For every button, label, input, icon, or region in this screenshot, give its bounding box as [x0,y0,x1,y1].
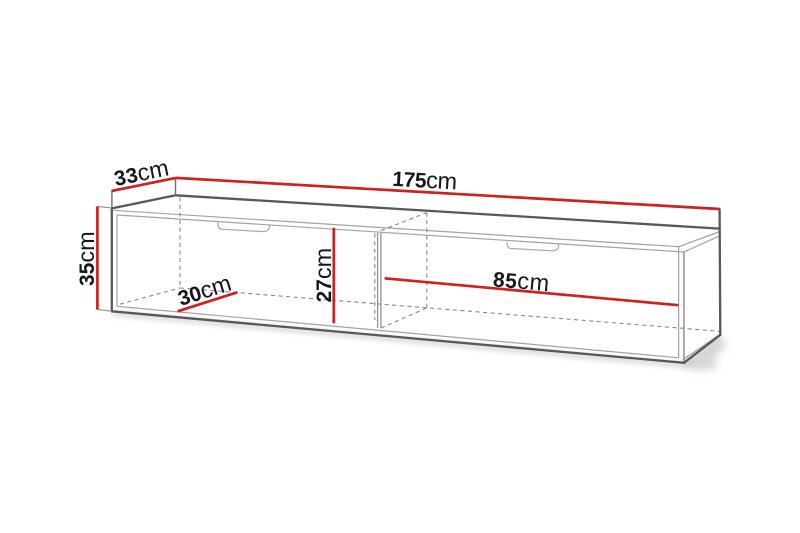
svg-text:85cm: 85cm [492,265,551,296]
svg-text:175cm: 175cm [392,165,458,195]
svg-text:30cm: 30cm [174,270,234,311]
svg-text:33cm: 33cm [112,154,172,191]
svg-text:35cm: 35cm [73,231,99,286]
svg-text:27cm: 27cm [310,248,336,303]
